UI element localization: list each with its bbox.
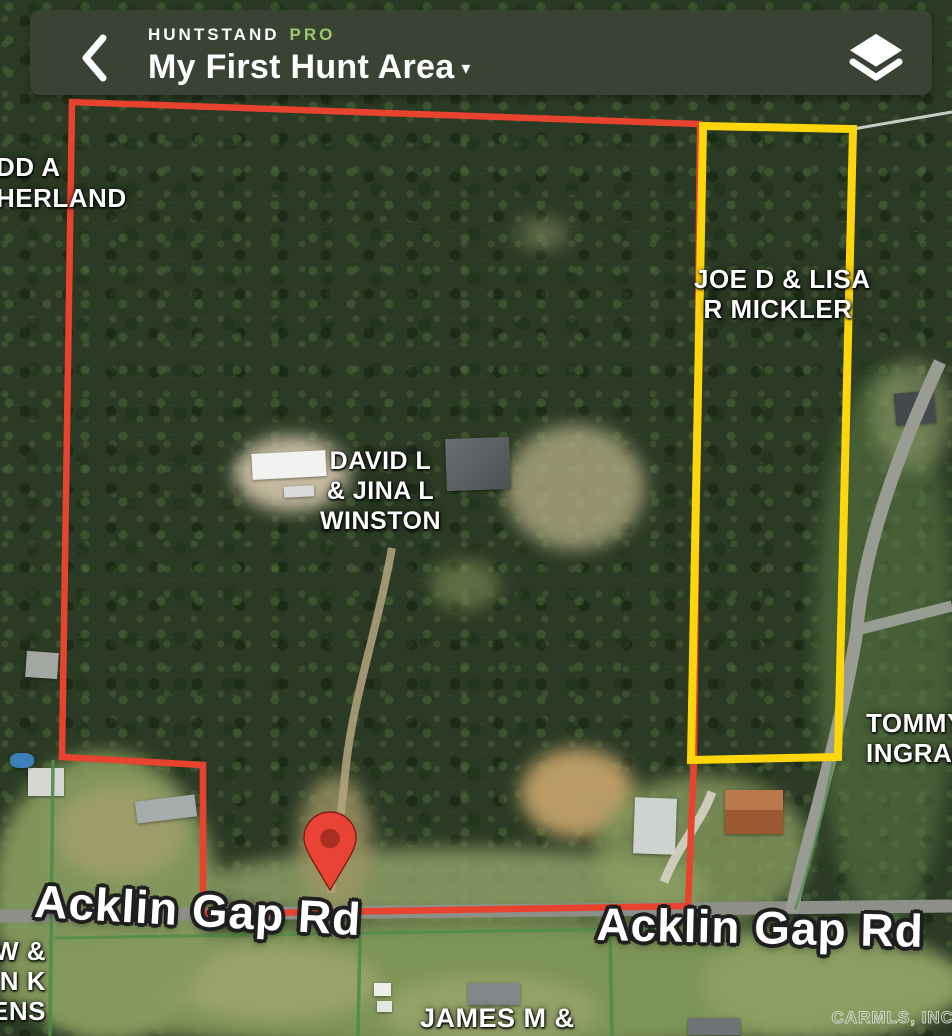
layers-icon (847, 30, 905, 84)
road-label-acklin-east: Acklin Gap Rd (596, 897, 924, 958)
parcel-label-ingram: TOMMYINGRAM (866, 708, 952, 768)
parcel-line-light (853, 112, 952, 129)
caret-down-icon: ▾ (461, 58, 470, 78)
road-side-branch (857, 606, 952, 630)
selected-parcel-boundary[interactable] (691, 126, 853, 760)
header-bar: HUNTSTANDPRO My First Hunt Area▾ (30, 10, 932, 95)
map-pin[interactable] (304, 812, 356, 890)
pro-badge: PRO (290, 25, 336, 44)
parcel-label-winston: DAVID L& JINA LWINSTON (298, 446, 463, 536)
parcel-line (358, 932, 360, 1036)
parcel-label-sutherland: DD AHERLAND (0, 152, 127, 214)
area-title-dropdown[interactable]: My First Hunt Area▾ (148, 48, 470, 87)
layers-button[interactable] (846, 28, 906, 86)
parcel-label-james: JAMES M & (420, 1003, 575, 1033)
brand-row: HUNTSTANDPRO (148, 25, 470, 45)
satellite-map[interactable]: DD AHERLAND JOE D & LISAR MICKLER DAVID … (0, 0, 952, 1036)
page-title: My First Hunt Area (148, 48, 454, 86)
back-button[interactable] (68, 30, 120, 86)
huntstand-map-screen: DD AHERLAND JOE D & LISAR MICKLER DAVID … (0, 0, 952, 1036)
parcel-label-neighbor-sw: W &EN KENS (0, 936, 46, 1026)
road-side (792, 362, 940, 912)
watermark: CARMLS, INC (832, 1008, 952, 1028)
brand-name: HUNTSTAND (148, 25, 280, 44)
header-titles: HUNTSTANDPRO My First Hunt Area▾ (148, 25, 470, 87)
parcel-label-mickler: JOE D & LISAR MICKLER (694, 264, 862, 324)
chevron-left-icon (81, 34, 107, 82)
